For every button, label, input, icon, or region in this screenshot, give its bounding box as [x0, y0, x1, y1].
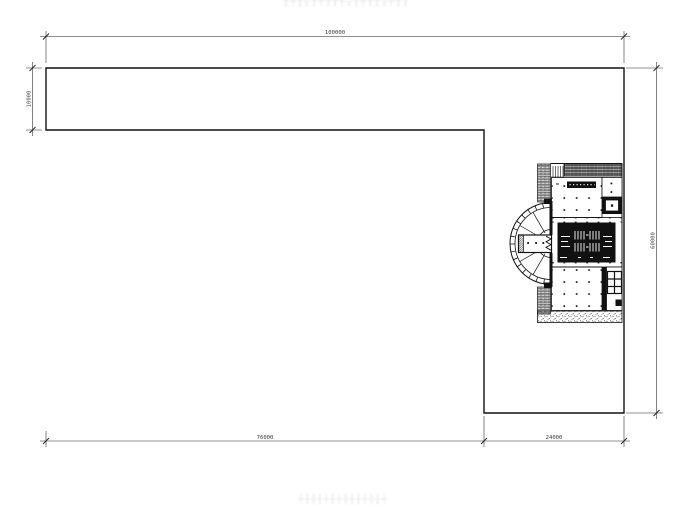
west-hatch-band-lower — [538, 287, 551, 314]
column-dot — [542, 242, 544, 244]
portico-attach-bottom — [544, 283, 552, 289]
elevator-shaft — [602, 197, 622, 214]
dim-right — [626, 62, 663, 419]
dim-bottom-left-label: 76000 — [257, 435, 274, 441]
column-dot — [611, 183, 613, 185]
west-wall-lower — [550, 253, 553, 287]
dim-right-label: 60000 — [651, 232, 657, 249]
top-stairs — [551, 166, 564, 177]
corridor-end-hatch — [519, 235, 524, 253]
site-plan-canvas: ╫╪╂╬╫╪╫╂╪╬╫╪╂╫╬╪╫╂ — [0, 0, 699, 510]
dim-top-label: 100000 — [325, 30, 345, 36]
core-wall — [602, 267, 607, 311]
column-dot — [527, 242, 529, 244]
dim-bottom-right-label: 24000 — [546, 435, 563, 441]
auditorium-block — [558, 223, 616, 263]
site-plan-drawing: 100000 10000 60000 76000 24000 — [0, 0, 699, 510]
column-row-bottom — [552, 262, 623, 267]
west-hatch-band-upper — [538, 164, 551, 202]
lower-hall — [552, 267, 603, 311]
column-dot — [611, 191, 613, 193]
column-dot — [535, 242, 537, 244]
duct-block — [616, 300, 622, 307]
dim-left-label: 10000 — [27, 91, 33, 108]
entry-corridor — [519, 235, 552, 253]
south-stipple-band — [538, 311, 623, 323]
column-row-top — [552, 218, 623, 223]
dim-bottom — [40, 416, 630, 447]
upper-right-room — [602, 178, 622, 198]
drawing-title-bottom: ╪╫╬╂╪╫╪╬╫╂╪╬╫╪ — [298, 495, 388, 505]
north-roof-hatch-band — [564, 164, 622, 177]
